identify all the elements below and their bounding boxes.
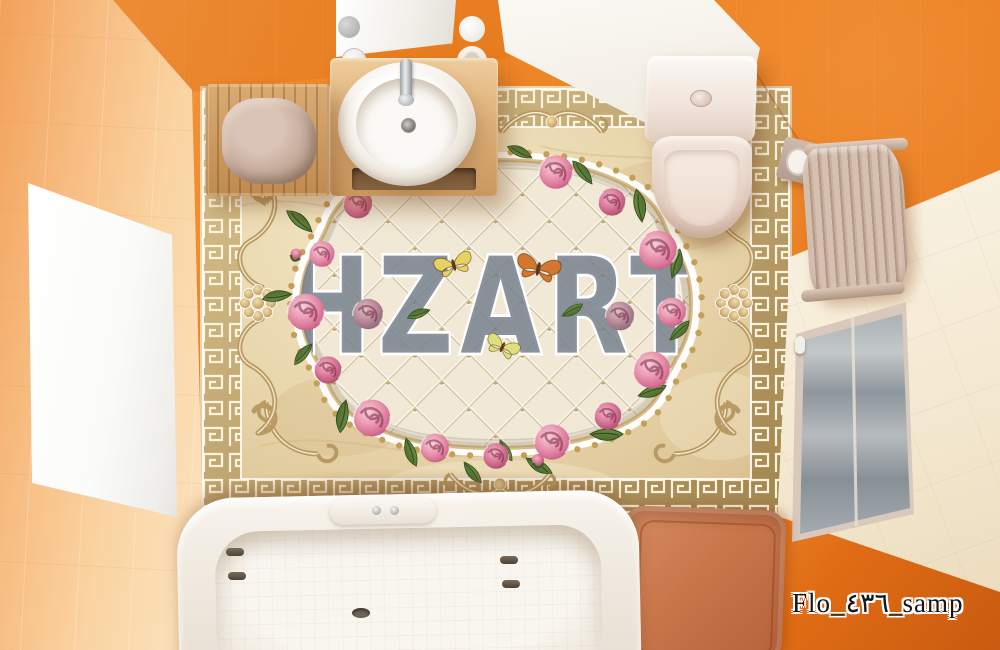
bathtub-basin (214, 524, 603, 650)
bathtub-headrest (330, 497, 436, 525)
toilet-flush-button (690, 90, 712, 107)
bathtub-handle (502, 580, 520, 588)
sample-id-label: Flo_٤٣٦_samp (792, 588, 964, 619)
faucet-head (398, 94, 414, 106)
shower-mat-inner-line (636, 520, 777, 650)
towel-radiator (801, 143, 911, 300)
shower-glass-handle (795, 336, 805, 354)
headrest-fixture (390, 506, 399, 515)
bathtub-drain (352, 608, 370, 618)
soap-dish (459, 16, 485, 42)
bathtub-handle (228, 572, 246, 580)
towel-in-basket (222, 98, 316, 184)
bathtub-handle (500, 556, 518, 564)
bathroom-top-view-photo: HZART (0, 0, 1000, 650)
bathtub-handle (226, 548, 244, 556)
sink-drain (401, 118, 416, 133)
cup (338, 16, 360, 38)
headrest-fixture (372, 506, 381, 515)
